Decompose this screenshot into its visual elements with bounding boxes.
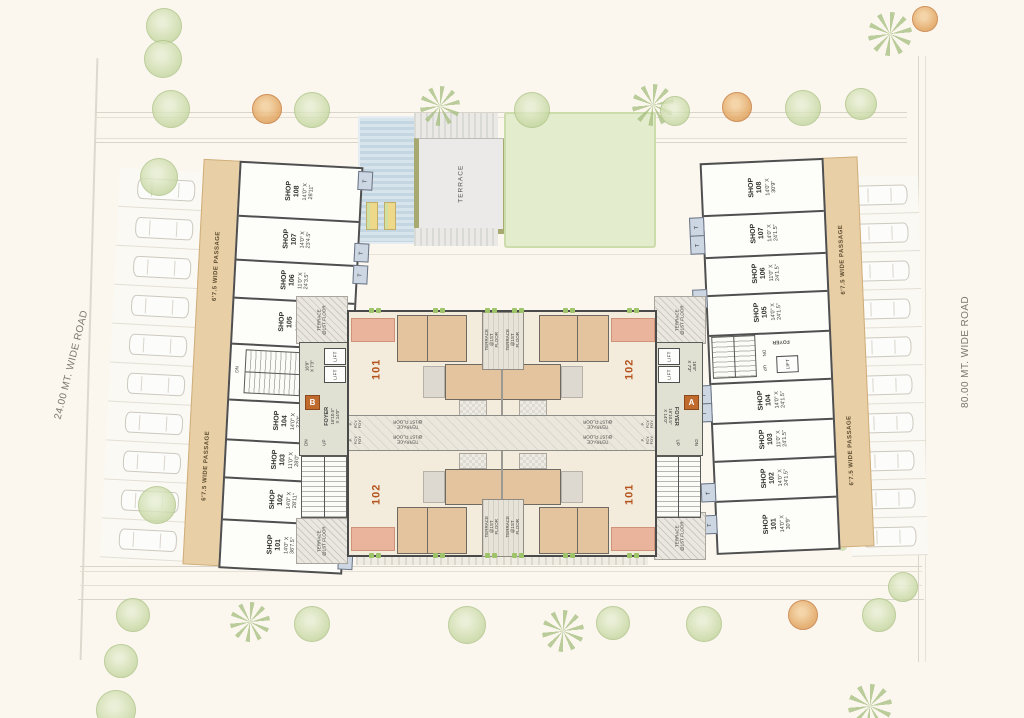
stairs-up-label: UP: [672, 435, 684, 451]
boundary-right-2: [925, 56, 926, 662]
palm-icon: [420, 86, 460, 126]
shrub-icon: [519, 553, 524, 558]
tree-icon: [96, 690, 136, 718]
shop-label: SHOP 105: [753, 302, 770, 323]
terrace-floor-label: TERRACE @1ST FLOOR: [482, 314, 501, 366]
car-icon: [125, 411, 184, 435]
balcony: [351, 318, 395, 342]
shrub-icon: [634, 553, 639, 558]
shrub-icon: [485, 553, 490, 558]
tree-icon: [448, 606, 486, 644]
stairs-up-label: UP: [318, 435, 330, 451]
room: [397, 507, 429, 554]
unit-label-101-tl: 101: [365, 347, 389, 391]
unit-label-102-tr: 102: [618, 347, 642, 391]
tree-icon: [888, 572, 918, 602]
site-plan: 24.00 MT. WIDE ROAD 80.00 MT. WIDE ROAD …: [0, 0, 1024, 718]
shop-label: SHOP 104: [757, 390, 774, 411]
shop-label: SHOP 107: [750, 224, 767, 245]
orange-tree-icon: [912, 6, 938, 32]
shop-dims: 14'0" X 24'1.5": [777, 468, 790, 488]
palm-icon: [868, 12, 912, 56]
bottom-road-line: [80, 571, 922, 572]
shop-dims: 11'0" X 24'1.5": [775, 429, 788, 449]
tree-icon: [138, 486, 176, 524]
balcony: [351, 527, 395, 551]
shrub-icon: [492, 308, 497, 313]
terrace-label: TERRACE: [457, 165, 464, 203]
terrace-floor-label: TERRACE @1ST FLOOR: [297, 297, 347, 343]
shrub-icon: [570, 553, 575, 558]
shop-label: SHOP 108: [748, 178, 765, 199]
tree-icon: [596, 606, 630, 640]
shop-dims: 14'0" X 28'11": [285, 491, 299, 511]
road-label-left: 24.00 MT. WIDE ROAD: [45, 281, 100, 449]
terrace-floor-label: TERRACE @1ST FLOOR: [655, 513, 705, 559]
orange-tree-icon: [788, 600, 818, 630]
lounger-icon: [384, 202, 396, 230]
foyer-slot: FOYER DN UP LIFT: [709, 330, 831, 385]
shop-label: SHOP 103: [271, 450, 288, 471]
shop-label: SHOP 106: [751, 264, 768, 285]
car-icon: [127, 372, 186, 396]
terrace-label-wrap: TERRACE: [419, 139, 503, 229]
stairs: [301, 456, 347, 518]
lift: LIFT: [324, 348, 346, 365]
car-icon: [129, 333, 188, 357]
tree-icon: [785, 90, 821, 126]
orange-tree-icon: [722, 92, 752, 122]
shop-dims: 14'0" X 24'1.5": [774, 390, 787, 410]
shrub-icon: [485, 308, 490, 313]
room: [427, 315, 467, 362]
shop-label: SHOP 103: [759, 429, 776, 450]
terrace-floor-label: TERRACE @1ST FLOOR: [655, 297, 705, 343]
balcony: [611, 318, 655, 342]
shrub-icon: [440, 553, 445, 558]
terrace-floor-label: TERRACE @1ST FLOOR: [482, 501, 501, 553]
shrub-icon: [433, 553, 438, 558]
terrace-block: TERRACE: [414, 138, 508, 234]
lift: LIFT: [658, 366, 680, 383]
toilet-box: T: [354, 243, 370, 263]
shrub-icon: [492, 553, 497, 558]
utility: [561, 366, 583, 398]
connector-terrace: TERRACE @1ST FLOOR: [654, 512, 706, 560]
shop-dims: 14'0" X 24'1.5": [766, 223, 779, 243]
shop-label: SHOP 101: [266, 535, 283, 556]
tree-icon: [862, 598, 896, 632]
lift-dims: 16'9" X 7'3": [684, 347, 700, 385]
utility: [423, 366, 445, 398]
stairs-dn-label: DN: [300, 435, 312, 451]
parking-stall: [108, 363, 204, 407]
shop-room: SHOP 10814'0" X 30'9": [702, 160, 824, 217]
room: [539, 507, 579, 554]
top-road-line: [95, 117, 907, 118]
car-icon: [853, 184, 908, 205]
orange-tree-icon: [252, 94, 282, 124]
shrub-icon: [512, 308, 517, 313]
parking-stall: [114, 246, 210, 290]
bath: [519, 453, 547, 469]
stairs-dn-label: DN: [758, 346, 771, 361]
toilet-box: T: [357, 171, 373, 191]
foyer-b-block: LIFT LIFT 16'9" X 7'3" B FOYER16'10.5" X…: [299, 342, 349, 456]
tree-icon: [660, 96, 690, 126]
toilet-box: T: [701, 483, 717, 503]
foyer-label: FOYER: [759, 334, 803, 347]
tree-icon: [686, 606, 722, 642]
shop-label: SHOP 104: [273, 411, 290, 432]
unit-label-101-br: 101: [618, 472, 642, 516]
shop-label: SHOP 105: [278, 312, 295, 333]
shop-label: SHOP 107: [282, 229, 299, 250]
shrub-icon: [627, 553, 632, 558]
lift: LIFT: [324, 366, 346, 383]
palm-icon: [848, 684, 892, 718]
car-icon: [854, 222, 909, 243]
foyer-b-marker: B: [305, 395, 320, 410]
toilet-box: T: [689, 217, 705, 237]
entry-label: P. FCY. FOY.: [642, 432, 654, 448]
stairs-up-label: UP: [758, 361, 771, 376]
stairs-dn-label: DN: [690, 435, 702, 451]
tree-icon: [294, 606, 330, 642]
shop-dims: 11'0" X 24'1.5": [768, 263, 781, 283]
entry-label: P. FCY. FOY.: [350, 416, 362, 432]
shrub-icon: [634, 308, 639, 313]
shop-dims: 11'0" X 24'3.5": [297, 271, 311, 291]
shop-label: SHOP 102: [269, 490, 286, 511]
bottom-road-line: [80, 566, 922, 567]
shop-label: SHOP 102: [760, 468, 777, 489]
foyer-a-marker: A: [684, 395, 699, 410]
car-icon: [135, 216, 194, 240]
shop-dims: 14'0" X 30'9": [764, 177, 777, 197]
stairs-dn-label: DN: [230, 361, 243, 380]
tree-icon: [116, 598, 150, 632]
shop-dims: 14'0" X 24'1.5": [770, 302, 783, 322]
car-icon: [118, 528, 177, 552]
tree-icon: [845, 88, 877, 120]
shop-dims: 14'0" X 36'7.5": [283, 536, 297, 556]
shrub-icon: [519, 308, 524, 313]
balcony: [611, 527, 655, 551]
utility: [423, 471, 445, 503]
shop-room: SHOP 10814'0" X 28'11": [239, 163, 362, 223]
car-icon: [122, 450, 181, 474]
parking-stall: [104, 440, 200, 484]
parking-stall: [110, 324, 206, 368]
shrub-icon: [570, 308, 575, 313]
terrace-hatch: [414, 228, 498, 246]
parking-stall: [106, 401, 202, 445]
connector-terrace: TERRACE @1ST FLOOR: [296, 296, 348, 344]
shrub-icon: [512, 553, 517, 558]
car-icon: [133, 255, 192, 279]
car-icon: [855, 260, 910, 281]
parking-stall: [112, 285, 208, 329]
utility: [561, 471, 583, 503]
terrace-floor-label: TERRACE @1ST FLOOR: [564, 432, 632, 446]
shop-label: SHOP 101: [762, 514, 779, 535]
toilet-box: T: [352, 265, 368, 285]
bath: [519, 400, 547, 416]
toilet-box: T: [690, 235, 706, 255]
tree-icon: [144, 40, 182, 78]
palm-icon: [230, 602, 270, 642]
shrub-icon: [563, 308, 568, 313]
shop-dims: 14'0" X 23'4.5": [299, 230, 313, 250]
entry-label: P. FCY. FOY.: [350, 432, 362, 448]
tree-icon: [294, 92, 330, 128]
car-icon: [131, 294, 190, 318]
stairs: [655, 456, 701, 518]
right-wing: 6'7.5 WIDE PASSAGE 6'7.5 WIDE PASSAGE SH…: [686, 156, 873, 551]
room: [427, 507, 467, 554]
unit-label-102-bl: 102: [365, 472, 389, 516]
parking-stall: [116, 207, 212, 251]
shrub-icon: [369, 553, 374, 558]
terrace-floor-label: TERRACE @1ST FLOOR: [297, 519, 347, 563]
shop-label: SHOP 108: [285, 181, 302, 202]
shrub-icon: [440, 308, 445, 313]
tree-icon: [104, 644, 138, 678]
boundary-left: [80, 58, 99, 660]
terrace-floor-label: TERRACE @1ST FLOOR: [564, 417, 632, 431]
room: [577, 315, 609, 362]
tree-icon: [514, 92, 550, 128]
connector-terrace: TERRACE @1ST FLOOR: [296, 518, 348, 564]
bottom-road-line: [80, 585, 922, 586]
room: [577, 507, 609, 554]
shrub-icon: [563, 553, 568, 558]
terrace-floor-label: TERRACE @1ST FLOOR: [503, 501, 522, 553]
bath: [459, 453, 487, 469]
tree-icon: [146, 8, 182, 44]
central-building: TERRACE @1ST FLOOR TERRACE @1ST FLOOR TE…: [347, 310, 657, 557]
lift-dims: 16'9" X 7'3": [302, 347, 318, 385]
shrub-icon: [376, 308, 381, 313]
shrub-icon: [369, 308, 374, 313]
road-label-right: 80.00 MT. WIDE ROAD: [959, 267, 973, 437]
shop-label: SHOP 106: [280, 270, 297, 291]
right-wing-shops: SHOP 10814'0" X 30'9" SHOP 10714'0" X 24…: [700, 158, 841, 555]
tree-icon: [152, 90, 190, 128]
palm-icon: [542, 610, 584, 652]
terrace-floor-label: TERRACE @1ST FLOOR: [374, 432, 442, 446]
room: [397, 315, 429, 362]
entry-label: P. FCY. FOY.: [642, 416, 654, 432]
shrub-icon: [433, 308, 438, 313]
stairs: [711, 335, 757, 379]
terrace-floor-label: TERRACE @1ST FLOOR: [374, 417, 442, 431]
foyer-a-block: LIFT LIFT 16'9" X 7'3" A FOYER16'10.5" X…: [653, 342, 703, 456]
lawn: [504, 112, 656, 248]
terrace-floor-label: TERRACE @1ST FLOOR: [503, 314, 522, 366]
lift: LIFT: [658, 348, 680, 365]
shop-room: SHOP 10114'0" X 30'9": [716, 496, 838, 553]
bath: [459, 400, 487, 416]
room: [539, 315, 579, 362]
shrub-icon: [627, 308, 632, 313]
lift: LIFT: [776, 355, 799, 373]
shop-dims: 14'0" X 30'9": [779, 514, 792, 534]
shop-dims: 14'0" X 28'11": [302, 182, 316, 202]
connector-terrace: TERRACE @1ST FLOOR: [654, 296, 706, 344]
tree-icon: [140, 158, 178, 196]
shrub-icon: [376, 553, 381, 558]
parking-stall: [100, 518, 196, 562]
